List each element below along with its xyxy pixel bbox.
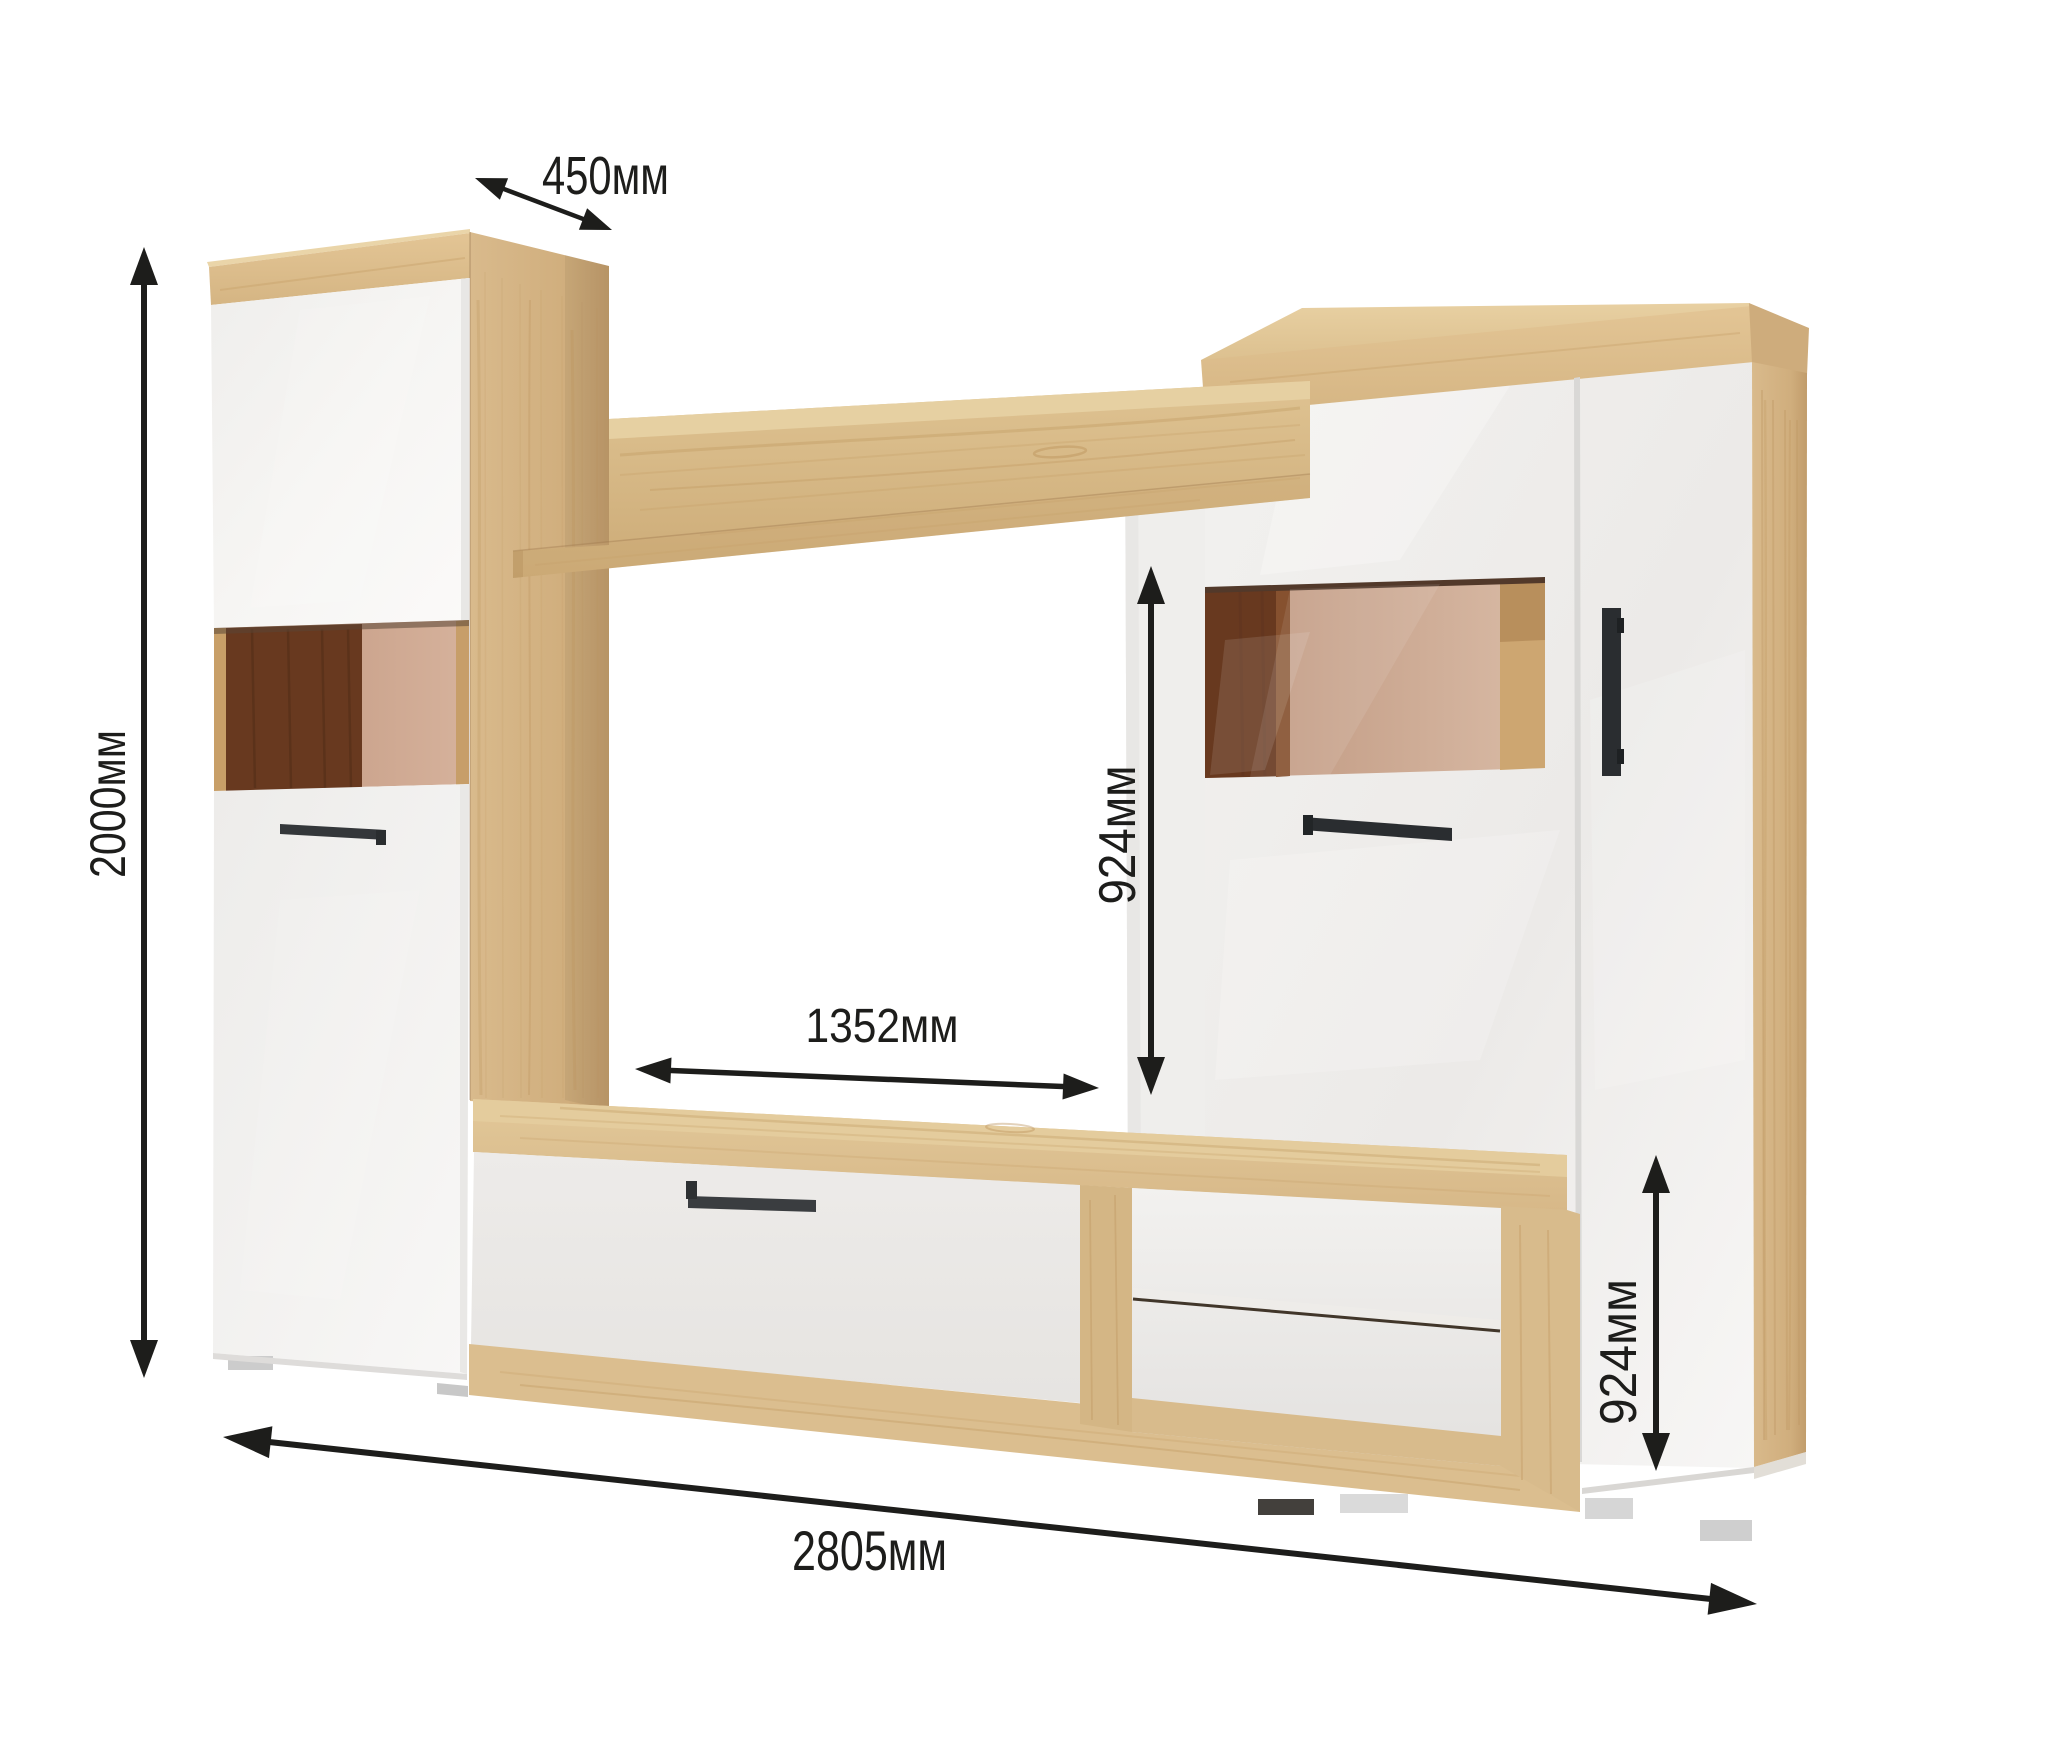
svg-text:1352мм: 1352мм — [806, 1000, 959, 1053]
svg-text:924мм: 924мм — [1590, 1279, 1648, 1425]
svg-text:924мм: 924мм — [1089, 766, 1147, 905]
svg-text:450мм: 450мм — [542, 146, 669, 206]
svg-text:2805мм: 2805мм — [792, 1519, 947, 1582]
svg-text:2000мм: 2000мм — [80, 730, 136, 878]
